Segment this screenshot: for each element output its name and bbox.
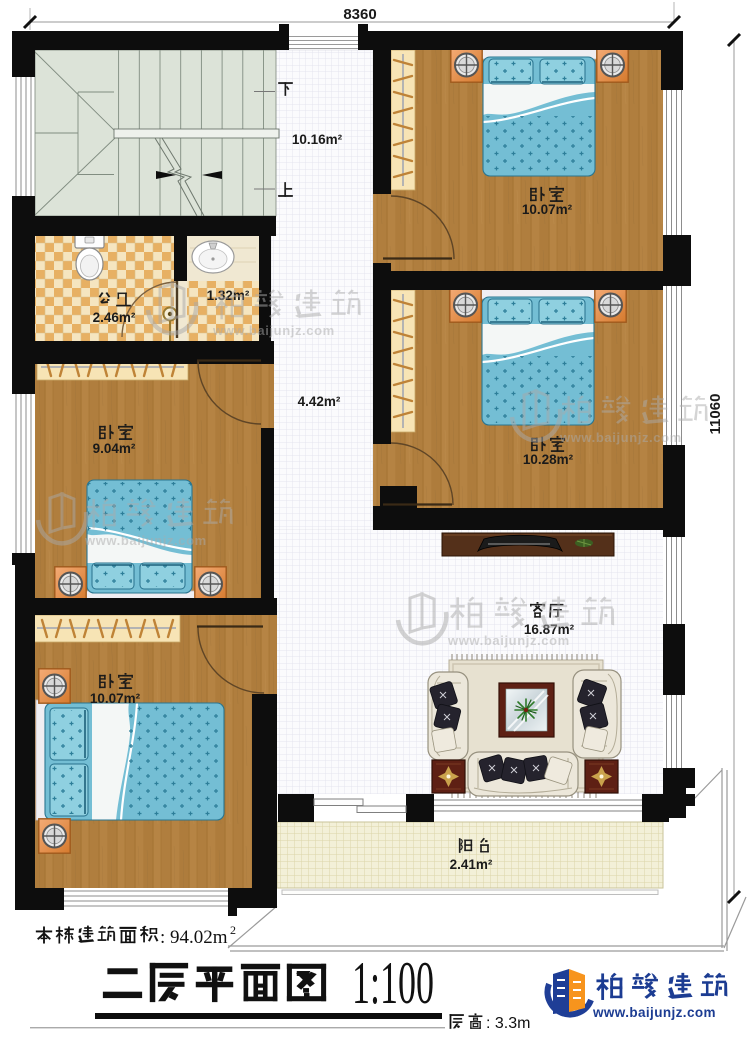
svg-text:9.04m²: 9.04m² (93, 441, 136, 456)
svg-text:www.baijunjz.com: www.baijunjz.com (559, 430, 682, 445)
svg-text:10.16m²: 10.16m² (292, 132, 343, 147)
svg-text:11060: 11060 (707, 394, 724, 435)
svg-text:2: 2 (230, 923, 236, 937)
svg-text:10.07m²: 10.07m² (522, 202, 573, 217)
svg-text:2.46m²: 2.46m² (93, 310, 136, 325)
svg-text:www.baijunjz.com: www.baijunjz.com (447, 633, 570, 648)
svg-text:www.baijunjz.com: www.baijunjz.com (212, 323, 335, 338)
svg-text:: 94.02m: : 94.02m (160, 927, 228, 948)
svg-text:8360: 8360 (343, 6, 376, 23)
svg-text:2.41m²: 2.41m² (450, 857, 493, 872)
svg-text:10.07m²: 10.07m² (90, 691, 141, 706)
svg-text:4.42m²: 4.42m² (298, 394, 341, 409)
svg-text:10.28m²: 10.28m² (523, 452, 574, 467)
svg-text:: 3.3m: : 3.3m (486, 1015, 530, 1032)
svg-text:www.baijunjz.com: www.baijunjz.com (84, 533, 207, 548)
svg-text:1:100: 1:100 (352, 950, 434, 1016)
svg-text:www.baijunjz.com: www.baijunjz.com (592, 1005, 716, 1020)
